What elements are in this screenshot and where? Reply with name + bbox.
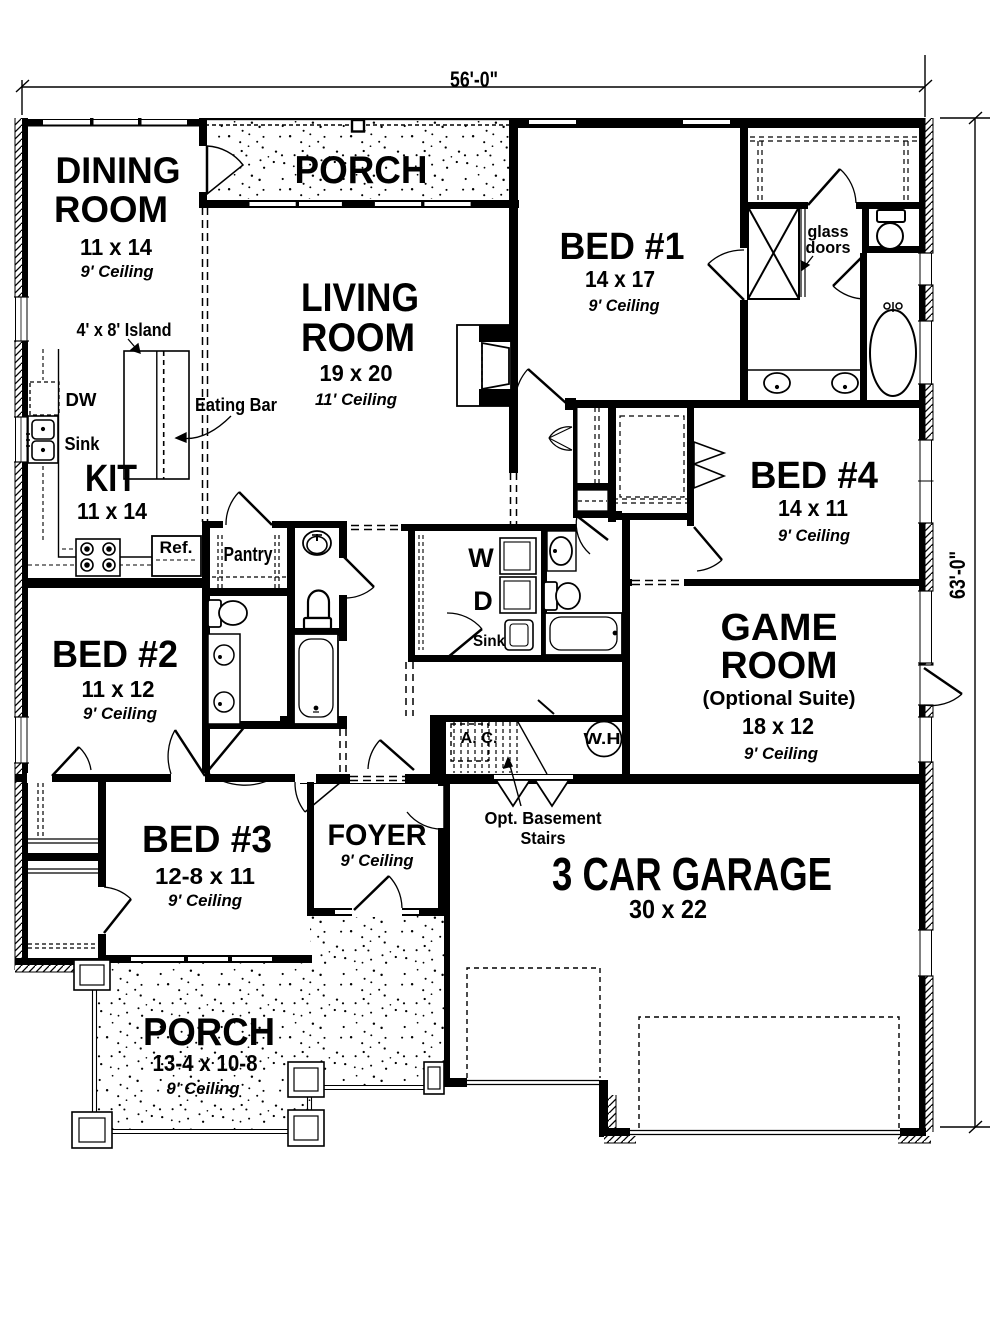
svg-text:11 x 14: 11 x 14 xyxy=(77,498,147,524)
svg-text:DINING: DINING xyxy=(56,150,181,191)
svg-text:ROOM: ROOM xyxy=(54,189,168,230)
svg-text:9' Ceiling: 9' Ceiling xyxy=(83,704,158,723)
svg-text:11' Ceiling: 11' Ceiling xyxy=(315,390,398,409)
svg-text:PORCH: PORCH xyxy=(143,1011,275,1054)
svg-text:63'-0": 63'-0" xyxy=(945,551,970,599)
svg-text:9' Ceiling: 9' Ceiling xyxy=(589,296,661,315)
svg-text:9' Ceiling: 9' Ceiling xyxy=(81,262,155,281)
svg-text:30 x 22: 30 x 22 xyxy=(629,894,707,924)
svg-text:Pantry: Pantry xyxy=(224,544,274,566)
svg-text:FOYER: FOYER xyxy=(328,819,427,852)
svg-text:D: D xyxy=(473,586,493,616)
svg-text:BED #1: BED #1 xyxy=(560,226,685,268)
svg-text:Sink: Sink xyxy=(473,633,505,650)
svg-text:9' Ceiling: 9' Ceiling xyxy=(778,526,851,545)
svg-text:11 x 12: 11 x 12 xyxy=(82,676,155,702)
svg-text:LIVING: LIVING xyxy=(301,276,419,320)
svg-text:ROOM: ROOM xyxy=(301,316,415,360)
svg-text:11 x 14: 11 x 14 xyxy=(80,234,152,260)
svg-text:56'-0": 56'-0" xyxy=(450,67,498,92)
svg-text:Opt. Basement: Opt. Basement xyxy=(485,808,602,828)
svg-text:A. C.: A. C. xyxy=(461,730,498,747)
svg-text:14 x 17: 14 x 17 xyxy=(585,266,655,292)
svg-text:3 CAR GARAGE: 3 CAR GARAGE xyxy=(552,848,832,900)
svg-text:Eating Bar: Eating Bar xyxy=(195,395,277,415)
svg-text:Ref.: Ref. xyxy=(160,538,193,557)
svg-text:18 x 12: 18 x 12 xyxy=(742,713,814,739)
svg-text:13-4 x 10-8: 13-4 x 10-8 xyxy=(153,1050,258,1076)
svg-text:GAME: GAME xyxy=(721,607,838,649)
svg-text:4' x 8' Island: 4' x 8' Island xyxy=(77,320,172,340)
svg-text:9' Ceiling: 9' Ceiling xyxy=(744,744,819,763)
svg-text:W: W xyxy=(468,543,494,573)
svg-text:BED #2: BED #2 xyxy=(52,634,178,676)
svg-text:BED #3: BED #3 xyxy=(142,819,272,861)
svg-text:12-8 x 11: 12-8 x 11 xyxy=(155,863,255,889)
svg-text:(Optional Suite): (Optional Suite) xyxy=(703,688,856,710)
svg-text:DW: DW xyxy=(66,390,97,410)
svg-text:19 x 20: 19 x 20 xyxy=(320,360,393,386)
svg-text:9' Ceiling: 9' Ceiling xyxy=(167,1079,241,1098)
svg-text:9' Ceiling: 9' Ceiling xyxy=(341,851,415,870)
svg-text:BED #4: BED #4 xyxy=(750,455,878,497)
svg-text:14 x 11: 14 x 11 xyxy=(778,495,848,521)
svg-text:KIT: KIT xyxy=(85,458,137,500)
svg-text:PORCH: PORCH xyxy=(295,149,428,192)
svg-text:doors: doors xyxy=(806,238,851,257)
svg-text:Sink: Sink xyxy=(65,434,101,454)
svg-text:9' Ceiling: 9' Ceiling xyxy=(168,891,243,910)
svg-text:Stairs: Stairs xyxy=(521,828,566,848)
svg-text:ROOM: ROOM xyxy=(721,645,838,687)
svg-text:W.H: W.H xyxy=(584,731,621,748)
